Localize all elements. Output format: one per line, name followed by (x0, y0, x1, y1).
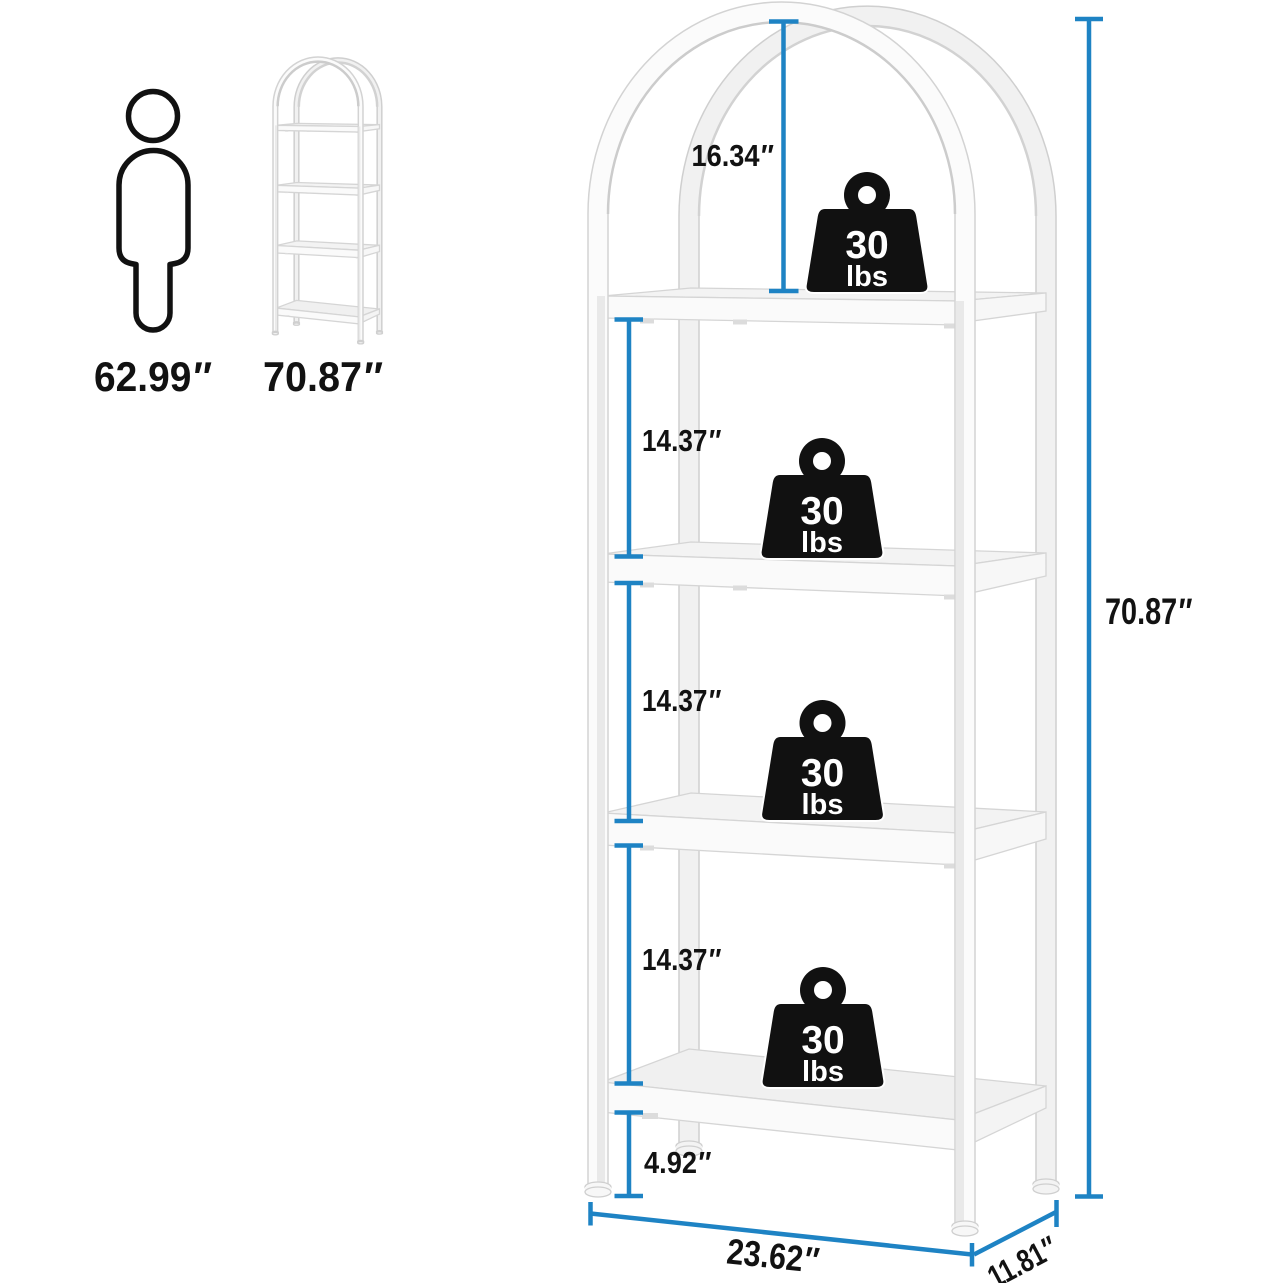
svg-text:62.99″: 62.99″ (94, 353, 212, 400)
svg-text:14.37″: 14.37″ (642, 683, 721, 718)
svg-text:4.92″: 4.92″ (644, 1145, 711, 1180)
svg-text:14.37″: 14.37″ (642, 942, 721, 977)
svg-text:70.87″: 70.87″ (1105, 591, 1193, 632)
svg-text:70.87″: 70.87″ (263, 353, 383, 400)
svg-text:14.37″: 14.37″ (642, 423, 721, 458)
svg-text:16.34″: 16.34″ (692, 138, 774, 173)
